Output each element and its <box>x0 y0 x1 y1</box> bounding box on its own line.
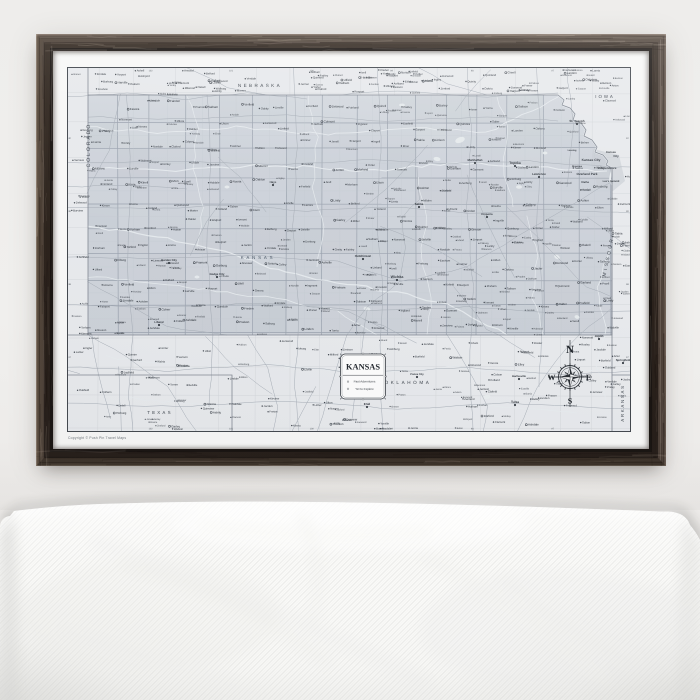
svg-text:Rosburg: Rosburg <box>240 363 250 366</box>
svg-text:Oakison: Oakison <box>356 300 367 304</box>
svg-text:Dorter: Dorter <box>161 346 169 350</box>
svg-text:Garora: Garora <box>316 83 324 86</box>
svg-text:Halford: Halford <box>165 278 174 282</box>
svg-text:Greora: Greora <box>525 205 533 208</box>
svg-text:Grener: Grener <box>73 73 81 76</box>
svg-text:Halison: Halison <box>239 343 248 346</box>
svg-text:Norland: Norland <box>103 182 113 186</box>
svg-text:Zenden: Zenden <box>371 83 380 86</box>
svg-text:Grener: Grener <box>391 405 399 408</box>
svg-text:Fairville: Fairville <box>393 187 402 190</box>
svg-text:Independence: Independence <box>598 166 617 170</box>
svg-text:Olathe: Olathe <box>581 181 590 184</box>
svg-text:Easora: Easora <box>130 107 140 111</box>
svg-text:Lanley: Lanley <box>568 98 576 101</box>
svg-text:Greden: Greden <box>366 192 375 195</box>
svg-text:Milson: Milson <box>414 228 422 231</box>
svg-text:Salter: Salter <box>492 120 499 124</box>
svg-text:Garfield: Garfield <box>412 92 421 95</box>
svg-text:Delville: Delville <box>301 228 310 232</box>
svg-text:Linden: Linden <box>305 327 314 331</box>
svg-text:Ivner: Ivner <box>471 108 477 112</box>
svg-text:Freland: Freland <box>304 162 314 166</box>
svg-text:Claell: Claell <box>148 377 154 380</box>
svg-text:Pramont: Pramont <box>196 261 208 265</box>
svg-text:Colham: Colham <box>102 390 112 394</box>
svg-text:Ulden: Ulden <box>493 258 501 262</box>
svg-text:Zendale: Zendale <box>424 342 435 346</box>
svg-text:Ashfield: Ashfield <box>79 255 89 259</box>
svg-text:Burland: Burland <box>559 317 568 320</box>
svg-text:Morfield: Morfield <box>523 350 533 354</box>
svg-text:Delport: Delport <box>559 86 568 90</box>
svg-text:Elville: Elville <box>304 367 312 371</box>
svg-text:Ulden: Ulden <box>608 230 615 233</box>
svg-text:Frener: Frener <box>530 89 538 93</box>
svg-text:Elison: Elison <box>562 246 570 250</box>
svg-text:Frefield: Frefield <box>301 185 311 189</box>
svg-text:Yorham: Yorham <box>130 228 141 232</box>
svg-text:Easora: Easora <box>402 111 410 114</box>
svg-text:Harville: Harville <box>118 81 128 85</box>
svg-text:Hays: Hays <box>270 180 277 184</box>
svg-text:Ingity: Ingity <box>519 182 526 185</box>
svg-text:Burview: Burview <box>357 332 366 335</box>
svg-text:Norwood: Norwood <box>394 238 406 242</box>
svg-text:Ulton: Ulton <box>205 349 212 353</box>
svg-text:Yorview: Yorview <box>133 290 142 293</box>
svg-text:Yorter: Yorter <box>102 301 108 304</box>
svg-text:Garria: Garria <box>135 185 142 188</box>
svg-text:Easison: Easison <box>137 308 146 311</box>
svg-text:Quinora: Quinora <box>459 122 470 126</box>
svg-text:Torford: Torford <box>81 196 89 199</box>
svg-text:Belburg: Belburg <box>267 227 277 231</box>
svg-text:Easter: Easter <box>515 241 522 244</box>
svg-text:Ivmont: Ivmont <box>238 218 247 222</box>
svg-text:Jacwood: Jacwood <box>357 421 367 424</box>
svg-text:Elley: Elley <box>428 160 434 163</box>
svg-text:Harfield: Harfield <box>353 292 362 295</box>
svg-text:Rosmont: Rosmont <box>562 74 572 77</box>
svg-text:Garmont: Garmont <box>473 167 484 171</box>
svg-text:Oakton: Oakton <box>255 178 265 182</box>
svg-text:Garley: Garley <box>336 218 345 222</box>
svg-text:Arville: Arville <box>396 282 404 286</box>
svg-text:Kirview: Kirview <box>270 397 280 401</box>
svg-text:NEBRASKA: NEBRASKA <box>238 83 282 88</box>
svg-text:Colter: Colter <box>176 319 184 323</box>
svg-text:Ashner: Ashner <box>232 144 241 148</box>
svg-text:Arora: Arora <box>511 235 518 238</box>
svg-text:Quinford: Quinford <box>569 130 579 133</box>
svg-text:Linison: Linison <box>435 138 445 142</box>
svg-text:Colner: Colner <box>162 307 171 311</box>
svg-text:Halden: Halden <box>189 127 198 131</box>
svg-text:Fairner: Fairner <box>459 262 468 266</box>
svg-text:Ivell: Ivell <box>361 71 366 75</box>
svg-text:Claford: Claford <box>171 145 180 149</box>
svg-text:Kinwood: Kinwood <box>470 363 481 367</box>
svg-text:Rosburg: Rosburg <box>596 185 608 189</box>
svg-text:Uldale: Uldale <box>191 160 199 164</box>
svg-text:Ivport: Ivport <box>505 318 511 321</box>
svg-text:Ashdale: Ashdale <box>186 318 197 322</box>
svg-text:Milview: Milview <box>95 167 106 171</box>
svg-text:Belner: Belner <box>499 125 506 128</box>
svg-text:Greson: Greson <box>471 227 481 231</box>
svg-text:Morner: Morner <box>258 164 268 168</box>
svg-text:Oakview: Oakview <box>585 78 597 82</box>
svg-text:Morland: Morland <box>536 146 547 150</box>
svg-text:Arville: Arville <box>82 303 89 306</box>
svg-text:Oakell: Oakell <box>582 243 591 247</box>
svg-text:Jenden: Jenden <box>283 239 292 242</box>
svg-text:Verell: Verell <box>572 319 579 323</box>
svg-text:101: 101 <box>229 428 234 431</box>
svg-text:Rosria: Rosria <box>233 180 242 184</box>
svg-text:Kinner: Kinner <box>513 145 521 149</box>
svg-text:Easport: Easport <box>578 88 587 91</box>
svg-text:Elton: Elton <box>149 286 156 290</box>
svg-text:Fairley: Fairley <box>346 248 355 252</box>
svg-text:Verview: Verview <box>74 158 85 162</box>
svg-text:Fairville: Fairville <box>185 289 195 293</box>
svg-text:Garwood: Garwood <box>559 181 572 185</box>
svg-text:OKLAHOMA: OKLAHOMA <box>385 380 432 385</box>
svg-text:Roster: Roster <box>534 341 542 345</box>
svg-text:Elson: Elson <box>376 181 384 185</box>
svg-text:Burwood: Burwood <box>463 396 473 399</box>
svg-text:Enid: Enid <box>364 402 371 406</box>
svg-text:Torria: Torria <box>548 219 555 222</box>
svg-text:Belville: Belville <box>422 238 432 242</box>
svg-text:Ivland: Ivland <box>458 239 465 242</box>
svg-text:Yorport: Yorport <box>117 72 126 76</box>
svg-text:Oakdale: Oakdale <box>231 402 242 406</box>
svg-text:Greell: Greell <box>508 71 516 75</box>
svg-text:Lawrence: Lawrence <box>532 172 546 176</box>
svg-text:Fairell: Fairell <box>399 216 406 219</box>
svg-text:City: City <box>613 154 619 158</box>
svg-text:Milwood: Milwood <box>185 86 196 90</box>
svg-text:Belville: Belville <box>189 383 198 387</box>
svg-text:Linport: Linport <box>577 358 586 362</box>
svg-text:Jacity: Jacity <box>423 308 430 311</box>
svg-text:Quinity: Quinity <box>467 79 476 83</box>
svg-text:Dorford: Dorford <box>146 226 156 230</box>
svg-text:Milton: Milton <box>241 376 248 379</box>
svg-text:St. Joseph: St. Joseph <box>569 119 584 123</box>
svg-text:Milford: Milford <box>330 353 339 357</box>
svg-text:Praner: Praner <box>359 287 366 290</box>
svg-text:Frefield: Frefield <box>197 316 206 319</box>
svg-text:Kirity: Kirity <box>526 180 533 184</box>
svg-text:Rosville: Rosville <box>180 364 190 368</box>
svg-text:ARKANSAS: ARKANSAS <box>620 384 625 422</box>
svg-text:Ivwood: Ivwood <box>280 245 288 248</box>
svg-text:Fairria: Fairria <box>623 244 631 248</box>
svg-text:101: 101 <box>229 70 234 73</box>
svg-text:Claburg: Claburg <box>480 242 489 245</box>
svg-text:Verora: Verora <box>490 361 499 365</box>
svg-text:Ingfield: Ingfield <box>475 324 483 327</box>
svg-text:Claport: Claport <box>371 129 380 133</box>
svg-text:Milter: Milter <box>353 219 360 223</box>
svg-text:Elley: Elley <box>518 362 525 366</box>
svg-text:Elner: Elner <box>403 144 410 148</box>
svg-text:Freburg: Freburg <box>418 262 428 266</box>
svg-text:Lanter: Lanter <box>76 350 84 354</box>
svg-text:Emporia: Emporia <box>481 212 493 216</box>
svg-text:Dodge City: Dodge City <box>210 272 225 276</box>
svg-text:Jacley: Jacley <box>547 312 555 315</box>
svg-text:Belford: Belford <box>206 71 215 75</box>
svg-text:Ivview: Ivview <box>576 79 585 83</box>
svg-text:Jacham: Jacham <box>623 377 631 381</box>
svg-text:Salham: Salham <box>208 105 219 109</box>
svg-text:100: 100 <box>310 70 315 73</box>
svg-text:Elley: Elley <box>527 186 533 189</box>
svg-text:Ashity: Ashity <box>213 410 222 414</box>
svg-text:Salison: Salison <box>518 105 528 109</box>
svg-text:Oakley: Oakley <box>403 105 412 109</box>
svg-text:Fairria: Fairria <box>93 140 101 144</box>
svg-text:Landen: Landen <box>514 129 524 133</box>
svg-text:Easfield: Easfield <box>403 121 413 125</box>
svg-text:Freview: Freview <box>98 87 109 91</box>
svg-text:Burburg: Burburg <box>103 79 113 83</box>
svg-text:Normont: Normont <box>121 118 132 122</box>
svg-text:Lanria: Lanria <box>592 69 600 73</box>
svg-text:Dorter: Dorter <box>574 259 582 263</box>
svg-text:Zenport: Zenport <box>312 293 321 296</box>
svg-text:Quinview: Quinview <box>437 114 447 117</box>
svg-text:Dorden: Dorden <box>116 332 125 335</box>
svg-text:Ashwood: Ashwood <box>209 188 220 191</box>
svg-text:Oakria: Oakria <box>484 87 493 91</box>
svg-text:Manhattan: Manhattan <box>468 158 483 162</box>
svg-text:Ulner: Ulner <box>510 304 516 307</box>
svg-text:Yorley: Yorley <box>169 84 176 87</box>
svg-text:Kindale: Kindale <box>97 72 107 76</box>
svg-text:KANSAS: KANSAS <box>346 363 380 372</box>
svg-text:Clafield: Clafield <box>488 390 498 394</box>
svg-text:Oakora: Oakora <box>504 267 514 271</box>
svg-text:Garmont: Garmont <box>446 309 457 313</box>
svg-text:Burley: Burley <box>439 103 448 107</box>
svg-text:Ivham: Ivham <box>471 341 479 345</box>
svg-text:Nordale: Nordale <box>195 141 204 144</box>
svg-text:Zenport: Zenport <box>473 238 483 242</box>
svg-text:Lindale: Lindale <box>230 377 239 381</box>
svg-text:Walner: Walner <box>459 295 467 298</box>
svg-text:E: E <box>586 373 591 382</box>
svg-text:Jenison: Jenison <box>574 69 583 72</box>
svg-text:Jacley: Jacley <box>518 165 527 169</box>
svg-text:Garison: Garison <box>423 277 433 281</box>
svg-text:Ashton: Ashton <box>420 186 430 190</box>
svg-text:Jacton: Jacton <box>244 243 253 247</box>
svg-text:Ardale: Ardale <box>232 114 240 117</box>
svg-text:Torland: Torland <box>376 207 386 211</box>
svg-text:Linland: Linland <box>373 266 382 270</box>
svg-text:Arison: Arison <box>197 247 205 251</box>
svg-text:Ashwood: Ashwood <box>615 118 626 121</box>
svg-text:Salina: Salina <box>415 202 424 206</box>
svg-text:Rosria: Rosria <box>150 421 158 424</box>
svg-text:Burfield: Burfield <box>415 355 425 359</box>
svg-text:Norley: Norley <box>149 100 157 103</box>
svg-text:Torden: Torden <box>467 297 477 301</box>
svg-text:Rosora: Rosora <box>104 283 113 287</box>
svg-text:Topeka: Topeka <box>509 161 521 165</box>
svg-text:Yorburg: Yorburg <box>116 411 127 415</box>
svg-text:Ulell: Ulell <box>238 282 244 286</box>
svg-text:Clamont: Clamont <box>232 416 241 419</box>
svg-text:Ulham: Ulham <box>500 308 507 311</box>
svg-text:Ivora: Ivora <box>131 202 138 206</box>
svg-text:Ivland: Ivland <box>381 339 388 342</box>
svg-text:Quinria: Quinria <box>369 273 377 276</box>
svg-text:Nordale: Nordale <box>153 144 163 148</box>
svg-text:Jenison: Jenison <box>480 387 490 391</box>
svg-text:Ulson: Ulson <box>221 122 229 126</box>
svg-text:Gredale: Gredale <box>412 74 421 77</box>
svg-text:Salmont: Salmont <box>373 302 382 305</box>
svg-text:Kirfield: Kirfield <box>439 301 447 304</box>
svg-text:Kinland: Kinland <box>502 291 511 294</box>
svg-text:Kirmont: Kirmont <box>564 171 573 174</box>
svg-text:Walria: Walria <box>157 359 165 363</box>
svg-text:Overland Park: Overland Park <box>577 172 598 176</box>
svg-text:Oakham: Oakham <box>528 278 537 281</box>
svg-text:Dorley: Dorley <box>162 162 171 166</box>
svg-text:Dorham: Dorham <box>95 246 106 250</box>
svg-text:Harville: Harville <box>291 285 300 288</box>
svg-text:Verfield: Verfield <box>244 102 254 106</box>
svg-text:Yorburg: Yorburg <box>192 133 201 136</box>
svg-text:Freburg: Freburg <box>284 306 293 309</box>
svg-text:Walford: Walford <box>264 304 274 308</box>
svg-text:Norburg: Norburg <box>169 93 178 96</box>
svg-text:Colmont: Colmont <box>324 120 335 124</box>
svg-text:Ingmont: Ingmont <box>307 284 317 288</box>
svg-text:Rosley: Rosley <box>581 343 590 347</box>
svg-text:Ulland: Ulland <box>139 264 146 267</box>
svg-text:Jacmont: Jacmont <box>308 258 319 262</box>
svg-text:Ingville: Ingville <box>544 242 552 245</box>
svg-text:Praton: Praton <box>398 393 406 396</box>
svg-text:Norter: Norter <box>552 225 560 229</box>
svg-text:Ulria: Ulria <box>173 187 179 190</box>
svg-text:Jenner: Jenner <box>394 109 402 112</box>
svg-text:Quinwood: Quinwood <box>176 203 189 207</box>
svg-text:Past Adventures: Past Adventures <box>354 380 376 384</box>
svg-text:Linity: Linity <box>469 145 476 149</box>
svg-text:Easville: Easville <box>521 387 530 390</box>
svg-text:Kinville: Kinville <box>509 326 518 330</box>
svg-text:Torner: Torner <box>170 382 178 386</box>
svg-text:Lee’s Summit: Lee’s Summit <box>603 180 620 183</box>
svg-text:Harson: Harson <box>158 264 166 267</box>
svg-text:Colley: Colley <box>111 188 118 191</box>
svg-text:Linity: Linity <box>333 198 341 202</box>
svg-text:102: 102 <box>149 70 154 73</box>
svg-text:Ivdale: Ivdale <box>596 304 603 307</box>
svg-text:Tormont: Tormont <box>397 167 407 171</box>
svg-text:Delwood: Delwood <box>332 104 344 108</box>
svg-text:Claell: Claell <box>605 297 611 300</box>
svg-text:Nority: Nority <box>119 244 126 247</box>
svg-text:Freria: Freria <box>444 348 451 351</box>
svg-text:Arton: Arton <box>612 83 619 87</box>
svg-text:Praner: Praner <box>309 308 317 312</box>
svg-text:Linner: Linner <box>536 334 543 337</box>
svg-text:Shawnee: Shawnee <box>572 165 583 168</box>
svg-text:Harport: Harport <box>352 139 362 143</box>
svg-text:Salner: Salner <box>230 204 238 208</box>
svg-text:102: 102 <box>149 428 154 431</box>
svg-text:Jenwood: Jenwood <box>613 317 623 320</box>
svg-text:Ashter: Ashter <box>580 199 589 203</box>
svg-text:Mormont: Mormont <box>348 148 358 151</box>
svg-text:Garport: Garport <box>499 114 507 117</box>
svg-text:Lanson: Lanson <box>443 316 452 319</box>
svg-text:Linison: Linison <box>599 416 607 419</box>
svg-text:Ulview: Ulview <box>174 81 181 84</box>
svg-text:Oakland: Oakland <box>605 366 616 370</box>
svg-text:Verdale: Verdale <box>247 77 257 81</box>
svg-text:Arville: Arville <box>286 201 294 205</box>
svg-text:Ingville: Ingville <box>495 219 504 223</box>
svg-text:Oakford: Oakford <box>453 235 462 238</box>
svg-text:Milden: Milden <box>423 199 432 203</box>
svg-text:Garell: Garell <box>344 418 352 422</box>
svg-text:Garburg: Garburg <box>458 300 467 303</box>
svg-text:Delport: Delport <box>497 137 505 140</box>
svg-text:Zenford: Zenford <box>441 86 451 90</box>
svg-text:Verison: Verison <box>178 355 188 359</box>
svg-text:Delson: Delson <box>153 394 161 397</box>
svg-text:Salburg: Salburg <box>265 321 275 325</box>
svg-text:Verville: Verville <box>566 206 574 209</box>
svg-text:Delter: Delter <box>445 179 452 182</box>
svg-text:Yorville: Yorville <box>380 422 389 426</box>
svg-text:Kinwood: Kinwood <box>374 326 385 330</box>
svg-text:Elter: Elter <box>314 348 319 351</box>
svg-text:Ashden: Ashden <box>139 300 149 304</box>
svg-text:COLORADO: COLORADO <box>86 123 92 168</box>
svg-text:Ingley: Ingley <box>278 177 285 180</box>
svg-text:Elity: Elity <box>336 422 341 425</box>
svg-text:Salton: Salton <box>582 421 590 425</box>
svg-text:Torner: Torner <box>535 226 543 230</box>
svg-text:Torson: Torson <box>268 262 277 266</box>
svg-text:Linter: Linter <box>315 403 322 407</box>
svg-text:Garburg: Garburg <box>216 264 227 268</box>
svg-text:Colell: Colell <box>554 222 560 225</box>
svg-text:Zenison: Zenison <box>343 348 353 352</box>
svg-text:Dorwood: Dorwood <box>556 261 568 265</box>
svg-text:Oakfield: Oakfield <box>305 390 314 393</box>
svg-text:Elner: Elner <box>215 133 221 136</box>
svg-text:Norison: Norison <box>613 263 622 266</box>
svg-text:Ivport: Ivport <box>427 112 433 115</box>
svg-text:Ivland: Ivland <box>623 254 630 257</box>
svg-text:Kirell: Kirell <box>98 232 104 235</box>
svg-text:Oakley: Oakley <box>377 228 385 231</box>
